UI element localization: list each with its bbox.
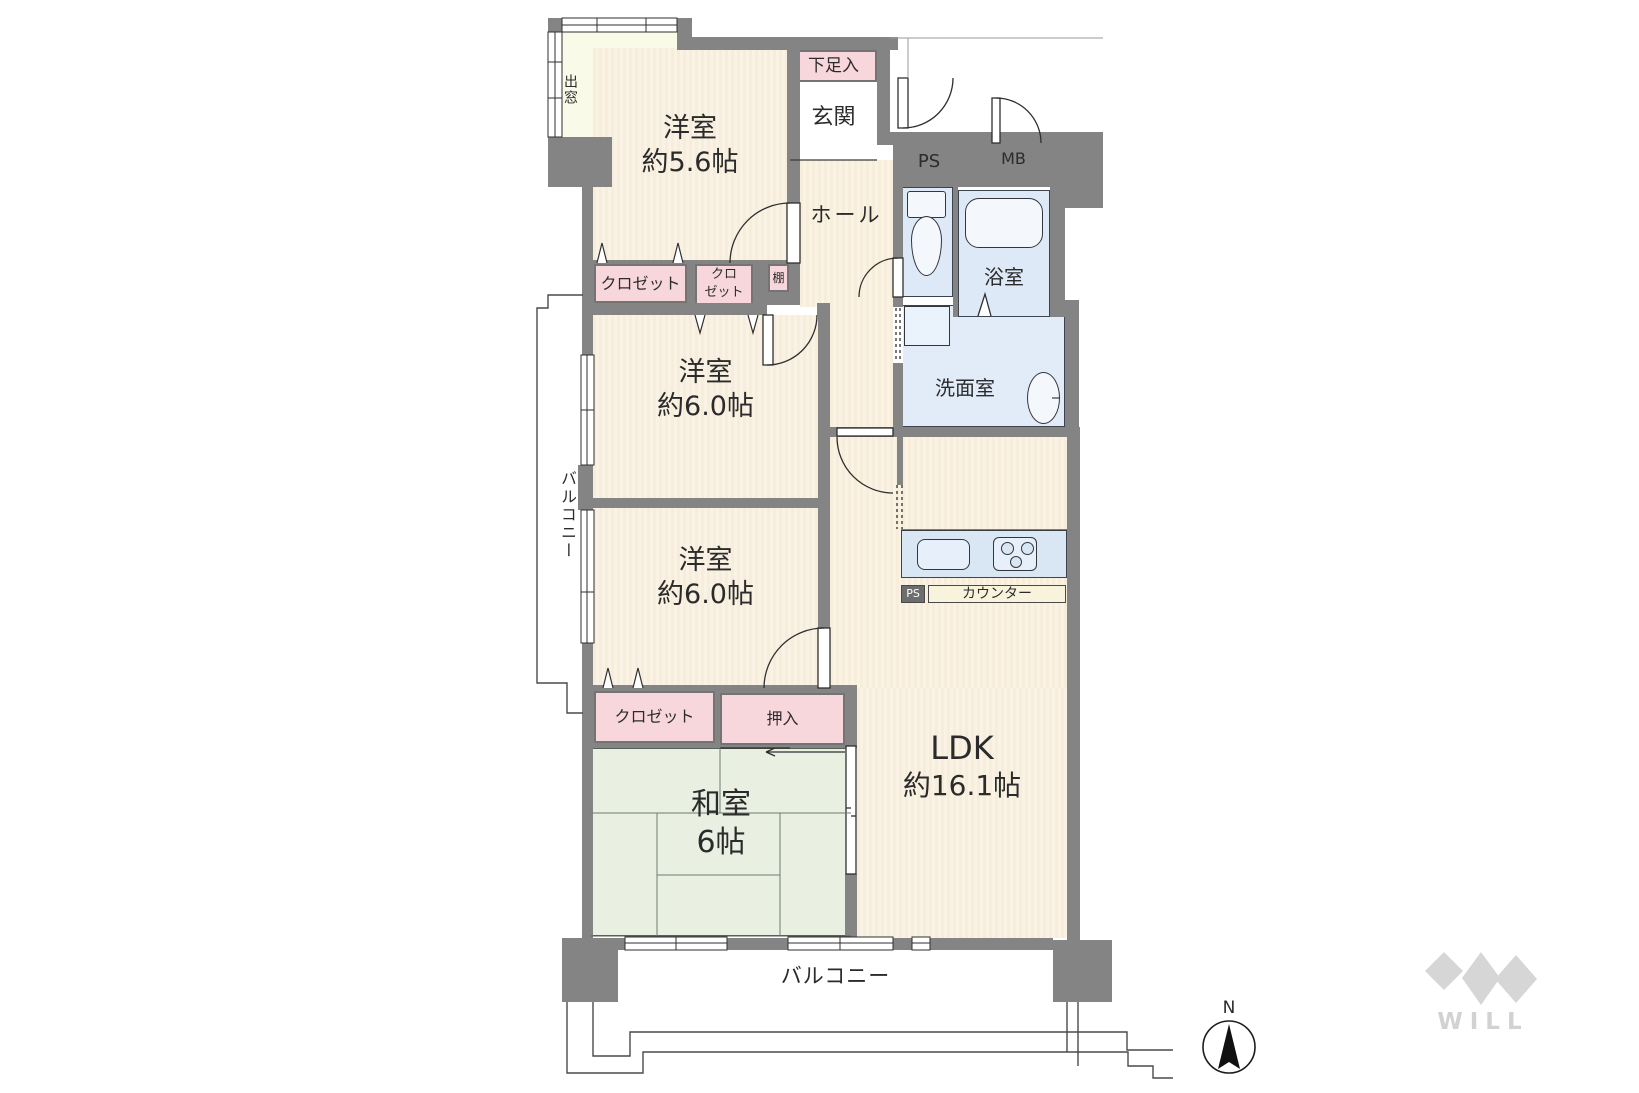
- entrance-label: 玄関: [790, 104, 877, 132]
- kitchen-sink: [917, 539, 970, 570]
- japanese-room-size: 6帖: [591, 824, 851, 862]
- western-room-1-size: 約5.6帖: [593, 146, 787, 180]
- japanese-room-name: 和室: [591, 786, 851, 824]
- western-room-3-name: 洋室: [593, 544, 818, 578]
- ldk-floor-lower: [857, 688, 1067, 938]
- washbasin: [1027, 372, 1060, 424]
- ldk-name: LDK: [857, 728, 1067, 768]
- closet-3-label: クロゼット: [594, 707, 715, 727]
- japanese-room-label: 和室 6帖: [591, 786, 851, 861]
- oshiire-label: 押入: [720, 709, 845, 729]
- western-room-2-size: 約6.0帖: [593, 390, 818, 424]
- stove-burner-2: [1021, 542, 1034, 555]
- western-room-2-label: 洋室 約6.0帖: [593, 356, 818, 424]
- counter-label: カウンター: [928, 586, 1066, 604]
- closet-2-label: クロ ゼット: [695, 266, 753, 301]
- compass-north-label: N: [1216, 998, 1242, 1019]
- ps-lower-label: PS: [901, 587, 925, 601]
- ldk-size: 約16.1帖: [857, 768, 1067, 803]
- hall-floor-upper: [800, 160, 893, 307]
- hall-label: ホール: [798, 202, 895, 228]
- ps-upper-label: PS: [903, 151, 955, 174]
- hall-floor-lower: [830, 307, 893, 427]
- floor-plan: 出窓 洋室 約5.6帖 下足入 玄関 ホール PS MB 浴室 洗面室 洋室 約…: [0, 0, 1639, 1093]
- bay-window-label: 出窓: [556, 55, 578, 125]
- western-room-2-name: 洋室: [593, 356, 818, 390]
- stove-burner-3: [1010, 556, 1022, 568]
- shelf-label: 棚: [768, 271, 789, 286]
- will-logo-text: WILL: [1422, 1008, 1544, 1037]
- ldk-label: LDK 約16.1帖: [857, 728, 1067, 803]
- balcony-left-label: バルコニー: [555, 455, 577, 575]
- will-logo-icon: [1425, 952, 1537, 1005]
- western-room-1-name: 洋室: [593, 112, 787, 146]
- western-room-3-size: 約6.0帖: [593, 578, 818, 612]
- mb-label: MB: [985, 149, 1042, 169]
- washroom-label: 洗面室: [901, 376, 1029, 401]
- western-room-1-label: 洋室 約5.6帖: [593, 112, 787, 180]
- western-room-3-label: 洋室 約6.0帖: [593, 544, 818, 612]
- toilet-tank: [907, 191, 946, 218]
- balcony-bottom-label: バルコニー: [618, 963, 1053, 989]
- closet-1-label: クロゼット: [594, 274, 687, 294]
- bathtub: [965, 198, 1043, 248]
- bathroom-label: 浴室: [958, 265, 1050, 290]
- stove-burner-1: [1001, 542, 1014, 555]
- washing-machine: [904, 306, 950, 346]
- compass-icon: [1203, 1021, 1255, 1073]
- shoe-cabinet-label: 下足入: [790, 56, 877, 77]
